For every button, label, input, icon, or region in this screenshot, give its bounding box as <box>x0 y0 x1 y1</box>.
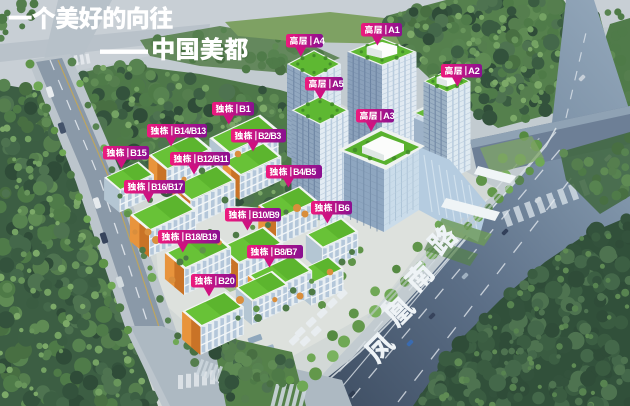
svg-text:B6: B6 <box>338 202 350 213</box>
svg-text:B8/B7: B8/B7 <box>274 247 297 257</box>
svg-text:B12/B11: B12/B11 <box>197 154 229 164</box>
svg-text:B20: B20 <box>218 275 235 286</box>
svg-text:A3: A3 <box>383 110 395 121</box>
svg-text:A1: A1 <box>388 24 400 35</box>
svg-text:B10/B9: B10/B9 <box>252 210 280 220</box>
svg-text:B1: B1 <box>239 103 251 114</box>
svg-text:B4/B5: B4/B5 <box>293 167 316 177</box>
svg-text:B2/B3: B2/B3 <box>258 131 281 141</box>
svg-text:B14/B13: B14/B13 <box>174 126 206 136</box>
svg-text:A2: A2 <box>468 65 480 76</box>
svg-text:A5: A5 <box>332 78 344 89</box>
svg-text:B15: B15 <box>130 147 147 158</box>
svg-text:B16/B17: B16/B17 <box>151 182 183 192</box>
svg-text:A4: A4 <box>313 35 326 46</box>
svg-text:B18/B19: B18/B19 <box>185 232 217 242</box>
